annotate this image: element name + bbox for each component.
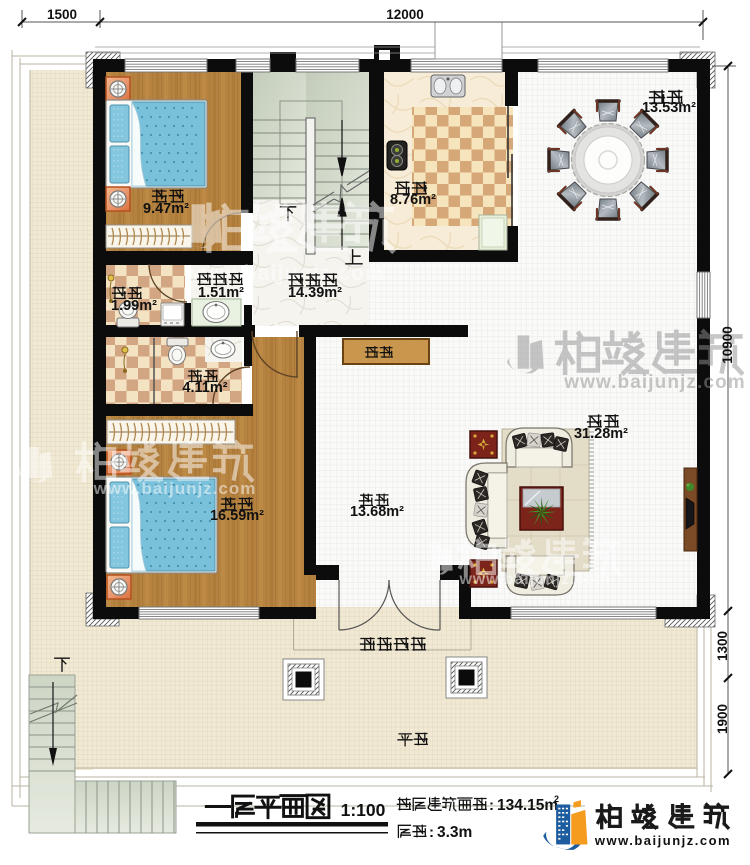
svg-text:www.baijunjz.com: www.baijunjz.com (594, 833, 731, 848)
svg-text:14.39m²: 14.39m² (288, 285, 342, 301)
svg-text:9.47m²: 9.47m² (143, 201, 189, 217)
svg-text:10900: 10900 (720, 326, 735, 364)
svg-text:13.68m²: 13.68m² (350, 504, 404, 520)
svg-text:16.59m²: 16.59m² (210, 508, 264, 524)
svg-text::: : (429, 824, 434, 841)
svg-text:1900: 1900 (715, 704, 730, 734)
svg-text:4.11m²: 4.11m² (182, 380, 227, 396)
svg-text:www.baijunjz.com: www.baijunjz.com (93, 479, 257, 498)
svg-text:13.53m²: 13.53m² (642, 100, 696, 116)
svg-text:31.28m²: 31.28m² (574, 426, 628, 442)
svg-text:3.3m: 3.3m (437, 824, 472, 841)
svg-text:134.15m: 134.15m (497, 797, 558, 814)
svg-text:8.76m²: 8.76m² (390, 192, 436, 208)
svg-text:www.baijunjz.com: www.baijunjz.com (184, 262, 385, 285)
svg-text:1:100: 1:100 (341, 800, 386, 820)
svg-text:1300: 1300 (715, 631, 730, 661)
svg-text:www.baijunjz.com: www.baijunjz.com (563, 372, 746, 393)
svg-text:2: 2 (554, 794, 559, 804)
svg-text:1.99m²: 1.99m² (111, 298, 157, 314)
svg-text:1500: 1500 (47, 7, 77, 22)
svg-text:12000: 12000 (386, 7, 424, 22)
svg-text:1.51m²: 1.51m² (198, 285, 244, 301)
svg-text:www.baijunjz.com: www.baijunjz.com (459, 571, 611, 588)
svg-text::: : (489, 797, 494, 814)
